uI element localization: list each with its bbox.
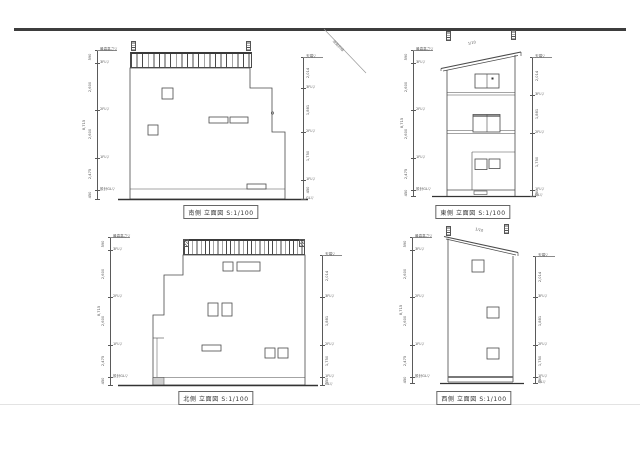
dimension-value: 2,600	[405, 129, 409, 139]
west-right-dimension-chain	[535, 256, 536, 383]
dimension-value: 450	[326, 378, 330, 385]
dimension-value: 1,750	[539, 356, 543, 366]
level-label: 最高高さ▽	[416, 48, 433, 52]
south-left-dimension-chain	[97, 50, 98, 199]
level-label: 設計GL▽	[113, 375, 128, 379]
level-label: 3FL▽	[325, 295, 334, 299]
dimension-value: 450	[307, 186, 311, 193]
level-label: 設計GL▽	[415, 375, 430, 379]
dimension-value: 2,600	[404, 316, 408, 326]
level-label: 天端▽	[306, 55, 316, 59]
dimension-value: 450	[539, 377, 543, 384]
level-label: 2FL▽	[113, 295, 122, 299]
dimension-value: 2,475	[404, 356, 408, 366]
level-label: 3FL▽	[113, 248, 122, 252]
dimension-value: 450	[89, 191, 93, 198]
level-label: 1FL▽	[306, 178, 315, 182]
dimension-value: 2,600	[102, 268, 106, 278]
east-left-dimension-chain	[413, 50, 414, 196]
dimension-tick	[411, 196, 416, 197]
overall-dimension-value: 8,715	[98, 306, 102, 316]
dimension-value: 2,475	[405, 169, 409, 179]
dimension-tick	[410, 383, 415, 384]
drawing-sheet: 道路斜線 1/10 1/10 南側 立面図 S:1/100 東側 立面図 S:1…	[0, 0, 640, 452]
dimension-value: 1,881	[539, 316, 543, 326]
level-label: 設計GL▽	[416, 188, 431, 192]
overall-dimension-value: 8,715	[83, 120, 87, 130]
level-label: 1FL▽	[415, 343, 424, 347]
east-right-dimension-chain	[532, 57, 533, 196]
level-label: 2FL▽	[325, 343, 334, 347]
level-label: 1FL▽	[416, 156, 425, 160]
level-label: 天端▽	[325, 253, 335, 257]
level-label: 最高高さ▽	[113, 235, 130, 239]
level-label: 3FL▽	[415, 248, 424, 252]
level-label: 2FL▽	[416, 108, 425, 112]
level-label: 天端▽	[535, 55, 545, 59]
dimension-value: 2,600	[404, 268, 408, 278]
level-label: 2FL▽	[415, 295, 424, 299]
dimension-value: 590	[405, 53, 409, 60]
level-label: 設計GL▽	[100, 188, 115, 192]
dimension-value: 1,881	[307, 105, 311, 115]
dimension-value: 1,750	[326, 356, 330, 366]
west-left-dimension-chain	[412, 237, 413, 383]
level-label: 3FL▽	[538, 295, 547, 299]
dimension-value: 1,881	[536, 109, 540, 119]
north-left-dimension-chain	[110, 237, 111, 385]
dimension-value: 1,750	[307, 151, 311, 161]
overall-dimension-value: 8,715	[401, 118, 405, 128]
dimension-tick	[108, 385, 113, 386]
level-label: 3FL▽	[416, 61, 425, 65]
level-label: 1FL▽	[113, 343, 122, 347]
dimension-value: 590	[102, 240, 106, 247]
dimension-value: 2,475	[102, 356, 106, 366]
level-label: 天端▽	[538, 254, 548, 258]
level-label: 2FL▽	[100, 108, 109, 112]
dimension-value: 2,600	[405, 81, 409, 91]
dimension-value: 2,014	[326, 271, 330, 281]
dimension-value: 450	[405, 190, 409, 197]
dimension-value: 590	[89, 53, 93, 60]
level-label: 2FL▽	[538, 343, 547, 347]
dimension-value: 2,014	[307, 67, 311, 77]
dimension-value: 1,750	[536, 156, 540, 166]
dimension-value: 450	[102, 378, 106, 385]
dimension-value: 450	[536, 190, 540, 197]
dimension-tick	[95, 199, 100, 200]
dimension-value: 1,881	[326, 316, 330, 326]
dimension-value: 590	[404, 240, 408, 247]
dimension-value: 2,014	[536, 71, 540, 81]
dimension-value: 450	[404, 377, 408, 384]
overall-dimension-value: 8,715	[400, 305, 404, 315]
level-label: 1FL▽	[100, 156, 109, 160]
dimension-chains-layer: 最高高さ▽3FL▽2FL▽1FL▽設計GL▽5902,6002,6002,475…	[0, 0, 640, 452]
level-label: 3FL▽	[100, 61, 109, 65]
dimension-value: 2,600	[89, 81, 93, 91]
level-label: 3FL▽	[535, 93, 544, 97]
north-right-dimension-chain	[322, 255, 323, 385]
level-label: 3FL▽	[306, 86, 315, 90]
dimension-value: 2,600	[102, 316, 106, 326]
dimension-value: 2,600	[89, 129, 93, 139]
south-right-dimension-chain	[303, 57, 304, 199]
level-label: 最高高さ▽	[415, 235, 432, 239]
dimension-value: 2,014	[539, 271, 543, 281]
level-label: 2FL▽	[535, 131, 544, 135]
dimension-value: 2,475	[89, 169, 93, 179]
level-label: 最高高さ▽	[100, 48, 117, 52]
level-label: GL▽	[306, 197, 314, 201]
level-label: 2FL▽	[306, 130, 315, 134]
